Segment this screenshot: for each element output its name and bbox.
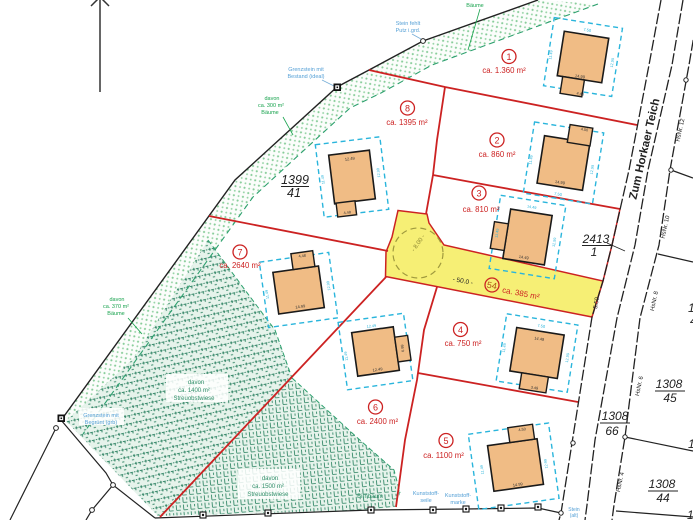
svg-text:ca. 860 m²: ca. 860 m²: [479, 150, 516, 159]
svg-text:Kunststoff-: Kunststoff-: [445, 493, 471, 499]
svg-text:2413: 2413: [582, 232, 610, 246]
svg-text:(alt): (alt): [570, 513, 579, 519]
svg-text:6: 6: [373, 403, 378, 413]
svg-text:3: 3: [476, 189, 481, 199]
svg-text:2: 2: [494, 136, 499, 146]
svg-text:1: 1: [506, 52, 511, 62]
svg-text:Kunststoff-: Kunststoff-: [413, 491, 439, 497]
svg-text:Stein fehlt: Stein fehlt: [396, 21, 421, 27]
svg-text:4: 4: [458, 325, 463, 335]
svg-text:ca. 1.360 m²: ca. 1.360 m²: [482, 66, 526, 75]
svg-text:66: 66: [605, 424, 619, 438]
svg-text:13: 13: [688, 301, 693, 315]
svg-text:ca. 1400 m²: ca. 1400 m²: [178, 388, 210, 394]
svg-text:Putz i.grd.: Putz i.grd.: [396, 28, 421, 34]
svg-text:45: 45: [663, 391, 677, 405]
svg-text:1399: 1399: [281, 173, 309, 187]
svg-text:Bestand (ideal): Bestand (ideal): [288, 74, 325, 80]
svg-text:davon: davon: [262, 476, 278, 482]
svg-text:marke: marke: [450, 500, 465, 506]
svg-text:seile: seile: [420, 498, 431, 504]
svg-text:5: 5: [443, 436, 448, 446]
svg-text:41: 41: [287, 186, 301, 200]
svg-text:davon: davon: [188, 380, 204, 386]
svg-text:ca. 1395 m²: ca. 1395 m²: [386, 118, 428, 127]
svg-text:davon: davon: [110, 297, 125, 303]
svg-text:ca. 1100 m²: ca. 1100 m²: [423, 451, 464, 460]
svg-text:7: 7: [237, 248, 242, 258]
svg-text:ca. 2400 m²: ca. 2400 m²: [357, 417, 399, 426]
svg-text:1: 1: [688, 437, 693, 451]
svg-text:ca. 370 m²: ca. 370 m²: [103, 304, 129, 310]
svg-text:Grenzstein mit: Grenzstein mit: [83, 413, 119, 419]
svg-text:Streuobstwiese: Streuobstwiese: [173, 396, 215, 402]
svg-text:8: 8: [405, 104, 410, 114]
svg-text:Bäume: Bäume: [261, 110, 278, 116]
svg-text:1: 1: [687, 508, 693, 520]
svg-text:davon: davon: [265, 96, 280, 102]
svg-text:Streuobstwiese: Streuobstwiese: [247, 492, 289, 498]
svg-text:1: 1: [591, 245, 598, 259]
svg-text:ca. 750 m²: ca. 750 m²: [445, 339, 482, 348]
svg-text:ca. 300 m²: ca. 300 m²: [258, 103, 284, 109]
svg-text:ca. 2640 m²: ca. 2640 m²: [219, 261, 261, 270]
svg-text:Begrünt (grb): Begrünt (grb): [85, 420, 118, 426]
svg-text:1308: 1308: [602, 409, 629, 423]
svg-text:1308: 1308: [649, 477, 676, 491]
svg-text:Bäume: Bäume: [107, 311, 124, 317]
svg-text:ca. 1500 m²: ca. 1500 m²: [252, 484, 284, 490]
svg-text:ca. 810 m²: ca. 810 m²: [463, 205, 500, 214]
svg-text:54: 54: [486, 280, 498, 292]
svg-text:1308: 1308: [656, 377, 683, 391]
svg-text:Birnbaum: Birnbaum: [357, 494, 383, 500]
svg-text:44: 44: [656, 491, 670, 505]
svg-text:Grenzstein mit: Grenzstein mit: [288, 67, 324, 73]
svg-text:Bäume: Bäume: [466, 3, 483, 9]
